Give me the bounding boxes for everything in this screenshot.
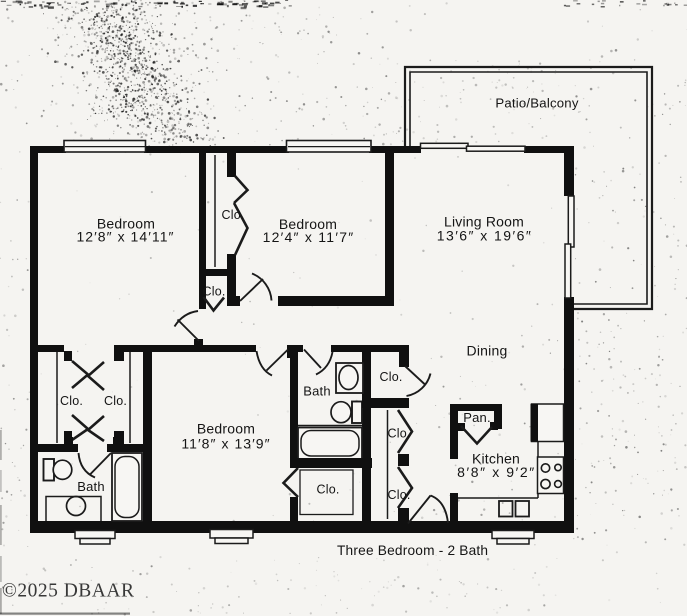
svg-text:Patio/Balcony: Patio/Balcony xyxy=(495,96,578,111)
svg-text:Clo.: Clo. xyxy=(221,208,244,222)
svg-text:8′8″ x 9′2″: 8′8″ x 9′2″ xyxy=(457,464,536,480)
svg-text:Clo.: Clo. xyxy=(60,394,83,408)
svg-text:Clo.: Clo. xyxy=(104,394,127,408)
svg-text:©2025 DBAAR: ©2025 DBAAR xyxy=(2,581,134,602)
svg-text:12′4″ x 11′7″: 12′4″ x 11′7″ xyxy=(263,229,355,245)
svg-text:Clo.: Clo. xyxy=(316,483,339,497)
svg-text:Clo.: Clo. xyxy=(379,370,402,384)
svg-text:Three Bedroom - 2 Bath: Three Bedroom - 2 Bath xyxy=(337,543,488,558)
svg-text:12′8″ x 14′11″: 12′8″ x 14′11″ xyxy=(76,229,174,245)
svg-text:Pan.: Pan. xyxy=(463,410,491,425)
svg-text:Clo.: Clo. xyxy=(202,285,225,299)
svg-text:13′6″ x 19′6″: 13′6″ x 19′6″ xyxy=(437,228,533,244)
svg-text:Dining: Dining xyxy=(467,343,508,359)
svg-text:Bedroom: Bedroom xyxy=(197,421,255,437)
svg-text:Clo.: Clo. xyxy=(387,427,410,441)
svg-text:11′8″ x 13′9″: 11′8″ x 13′9″ xyxy=(181,436,270,452)
svg-text:Clo.: Clo. xyxy=(387,488,410,502)
svg-text:Bath: Bath xyxy=(77,479,105,494)
svg-text:Bath: Bath xyxy=(303,384,331,399)
